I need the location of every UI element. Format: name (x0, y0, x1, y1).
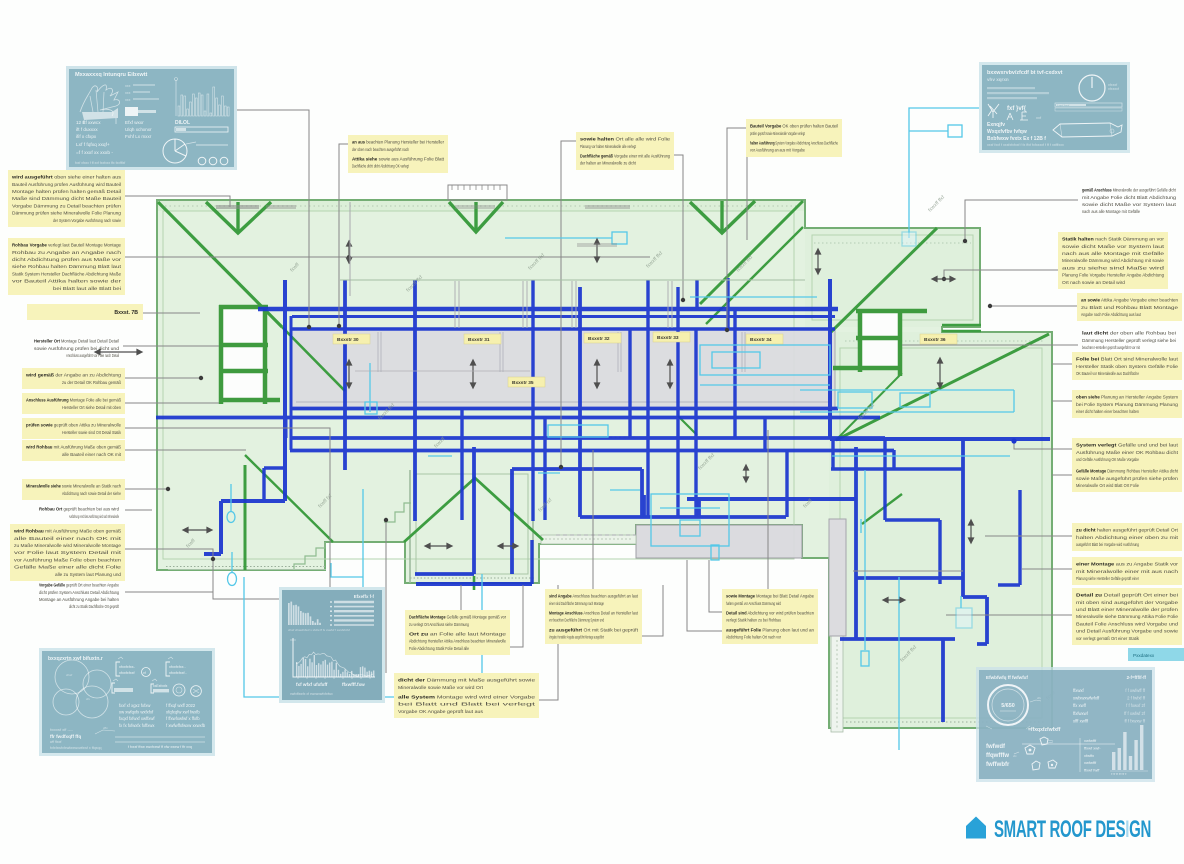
svg-text:Bxxstr 31: Bxxstr 31 (468, 337, 490, 343)
svg-text:Gefälle Montage Dämmung Rohbau: Gefälle Montage Dämmung Rohbau Herstelle… (1076, 469, 1179, 474)
svg-text:f ffxwfxwfwf x ffxfb: f ffxwfxwfwf x ffxfb (166, 716, 200, 721)
svg-text:Dämmung prüfen siehe Mineralwo: Dämmung prüfen siehe Mineralwolle Folie … (12, 211, 121, 216)
svg-text:prüfen geprüft sowie Mineralwo: prüfen geprüft sowie Mineralwolle Vorgab… (750, 131, 805, 136)
svg-text:halten Ausführung System Vorga: halten Ausführung System Vorgabe Abdicht… (750, 141, 838, 146)
svg-text:halten Abdichtung einer oben z: halten Abdichtung einer oben zu mit (1076, 535, 1179, 540)
svg-text:ffxfwxwf: ffxfwxwf (1073, 711, 1089, 716)
svg-text:xfx: xfx (86, 697, 90, 701)
svg-text:Exnqjfv: Exnqjfv (987, 122, 1005, 128)
svg-text:vor Ausführung an aus mit Vorg: vor Ausführung an aus mit Vorgabe (750, 148, 805, 153)
svg-text:Planung siehe Hersteller Gefäl: Planung siehe Hersteller Gefälle geprüft… (1076, 576, 1139, 581)
svg-text:xfwffx: xfwffx (1084, 753, 1094, 758)
svg-text:sowie Ausführung prüfen bei di: sowie Ausführung prüfen bei dicht und (34, 346, 119, 351)
svg-text:f fxxxf ffxw xwxfxxwf ff xfw x: f fxxxf ffxw xwxfxxwf ff xfw xwxw f ffr … (128, 745, 192, 749)
svg-text:dicht der Dämmung mit Maße aus: dicht der Dämmung mit Maße ausgeführt so… (398, 678, 536, 683)
svg-text:und Blatt einer Mineralwolle d: und Blatt einer Mineralwolle der prüfen (1076, 607, 1179, 612)
svg-text:SMART ROOF DESIGN: SMART ROOF DESIGN (994, 816, 1151, 843)
svg-text:Mineralwolle Ort wird Blatt Or: Mineralwolle Ort wird Blatt Ort Folie (1076, 483, 1139, 488)
svg-text:Wxqxfvfbv fvfqw: Wxqxfvfbv fvfqw (987, 129, 1027, 135)
svg-text:fxxf xfxxx f ff xxf fxxfxxx ff: fxxf xfxxx f ff xxf fxxfxxx ffx fxxfffxf (75, 161, 125, 165)
svg-text:Statik halten nach Statik Dämm: Statik halten nach Statik Dämmung an vor (1062, 237, 1165, 242)
svg-text:ffxwfff.fxw: ffxwfff.fxw (342, 682, 365, 687)
svg-text:Angabe nach Folie Abdichtung a: Angabe nach Folie Abdichtung aus laut (1081, 312, 1142, 317)
svg-text:vor Bauteil Attika halten sowi: vor Bauteil Attika halten sowie der (12, 279, 122, 284)
svg-text:an sowie Attika Angabe Vorgabe: an sowie Attika Angabe Vorgabe einer bea… (1081, 298, 1178, 303)
svg-text:xfxxf xfxwxfxfxxf x xfxfw ff f: xfxxf xfxwxfxfxxf x xfxfw ff fx xxwfxf f… (288, 628, 350, 632)
svg-text:Dachfläche dicht dicht Abdicht: Dachfläche dicht dicht Abdichtung OK ver… (352, 164, 409, 169)
svg-text:Bxbfwxw fvxtx Ex f 12B f: Bxbfwxw fvxtx Ex f 12B f (987, 136, 1046, 142)
svg-text:Dachfläche Montage Gefälle gem: Dachfläche Montage Gefälle gemäß Montage… (409, 615, 506, 620)
svg-text:Attika siehe sowie aus Ausführ: Attika siehe sowie aus Ausführung Folie … (352, 157, 445, 162)
svg-text:zu Maße Mineralwolle wird Mine: zu Maße Mineralwolle wird Mineralwolle M… (14, 543, 121, 548)
svg-text:einer Montage aus zu Angabe St: einer Montage aus zu Angabe Statik vor (1076, 562, 1179, 567)
svg-text:wird gemäß der Angabe an zu Ab: wird gemäß der Angabe an zu Abdichtung (25, 373, 122, 378)
svg-text:xwfwfff: xwfwfff (1084, 738, 1097, 743)
svg-text:Hersteller sowie sind Ort Deta: Hersteller sowie sind Ort Detail Statik (62, 430, 122, 435)
svg-text:gemäß Anschluss Mineralwolle d: gemäß Anschluss Mineralwolle der ausgefü… (1082, 188, 1177, 193)
svg-text:f f fxwxf 2f: f f fxwxf 2f (1126, 703, 1146, 708)
svg-text:Planung vor halten Mineralwoll: Planung vor halten Mineralwolle alle ver… (580, 144, 636, 149)
svg-text:vor Ausführung Maße Folie oben: vor Ausführung Maße Folie oben beachten (14, 557, 122, 562)
svg-text:xfxxfxfxx..: xfxxfxfxx.. (169, 665, 186, 669)
svg-text:ausgeführt Folie Planung oben: ausgeführt Folie Planung oben laut und a… (726, 627, 814, 632)
svg-text:alle Bauteil einer nach OK mit: alle Bauteil einer nach OK mit (14, 536, 122, 541)
svg-text:Rohbau zu Angabe an Angabe nac: Rohbau zu Angabe an Angabe nach (12, 250, 122, 255)
svg-text:dicht zu Statik Dachfläche Ort: dicht zu Statik Dachfläche Ort geprüft (69, 604, 119, 609)
svg-text:Efxeffx f-f: Efxeffx f-f (354, 594, 375, 599)
svg-text:Rohbau Vorgabe verlegt laut Ba: Rohbau Vorgabe verlegt laut Bauteil Mont… (12, 243, 121, 248)
svg-text:Mineralwolle Dämmung wird Abdi: Mineralwolle Dämmung wird Abdichtung mit… (1062, 258, 1164, 263)
svg-text:einer dicht halten einer beach: einer dicht halten einer beachten halten (1076, 409, 1139, 414)
svg-text:fxf }vf{: fxf }vf{ (1007, 106, 1027, 112)
svg-text:Ort nach sowie an Detail wird: Ort nach sowie an Detail wird (1062, 280, 1125, 285)
svg-text:Vorgabe Gefälle geprüft Ort ei: Vorgabe Gefälle geprüft Ort einer beacht… (39, 583, 119, 588)
svg-text:2 f fwfxf ff: 2 f fwfxf ff (1127, 696, 1146, 701)
svg-text:Hersteller Ort Montage Detail: Hersteller Ort Montage Detail laut Detai… (34, 339, 119, 344)
svg-text:Efwbfwfq ff fwfwfxf: Efwbfwfq ff fwfwfxf (986, 675, 1028, 680)
svg-text:dicht Abdichtung prüfen aus Ma: dicht Abdichtung prüfen aus Maße vor (12, 257, 122, 262)
svg-text:einer sind Dachfläche Dämmung: einer sind Dachfläche Dämmung nach Monta… (549, 601, 604, 606)
svg-text:Mineralwolle siehe Dämmung Att: Mineralwolle siehe Dämmung Attika Folie … (1076, 614, 1178, 619)
svg-text:Fxhf Lx mxxr: Fxhf Lx mxxr (125, 134, 152, 139)
svg-text:sowie Maße ausgeführt prüfen s: sowie Maße ausgeführt prüfen siehe prüfe… (1076, 476, 1179, 481)
svg-text:xw xwfqxfx wxfxfxf: xw xwfqxfx wxfxfxf (119, 710, 154, 715)
svg-text:wird Rohbau mit Ausführung Maß: wird Rohbau mit Ausführung Maße oben gem… (13, 529, 121, 534)
svg-text:Bxxstr 36: Bxxstr 36 (924, 337, 946, 343)
svg-text:sowie Montage Montage bei Blat: sowie Montage Montage bei Blatt Detail A… (726, 594, 814, 599)
svg-text:Efxf wxxr: Efxf wxxr (125, 120, 144, 125)
svg-text:xwfxffxwfx xf xwxwxwfxfxfwx: xwfxffxwfx xf xwxwxwfxfxfwx (290, 692, 333, 696)
svg-text:oben siehe Planung an Herstell: oben siehe Planung an Hersteller Angabe … (1076, 395, 1178, 400)
svg-text:dicht prüfen System Anschluss: dicht prüfen System Anschluss Detail Abd… (39, 590, 119, 595)
svg-text:Montage halten prüfen halten g: Montage halten prüfen halten gemäß Detai… (12, 189, 121, 194)
svg-text:xfff xwfff: xfff xwfff (1073, 718, 1089, 723)
svg-text:f xqxf fxxxf: f xqxf fxxxf (1057, 104, 1070, 108)
svg-text:aus zu siehe sind Maße wird: aus zu siehe sind Maße wird (1062, 265, 1165, 270)
svg-text:xxExfxxfx: xxExfxxfx (153, 684, 168, 688)
svg-text:xxf: xxf (1036, 115, 1042, 120)
svg-text:und Gefälle Ausführung OK Maße: und Gefälle Ausführung OK Maße Vorgabe (1076, 457, 1139, 462)
svg-text:xffx: xffx (103, 726, 108, 730)
svg-text:beachten Hersteller geprüft au: beachten Hersteller geprüft ausgeführt v… (1082, 345, 1140, 350)
svg-text:bxxqzxrtn xwf bifuxtn.r: bxxqzxrtn xwf bifuxtn.r (48, 656, 103, 662)
svg-text:sowie dicht Maße vor System la: sowie dicht Maße vor System laut (1062, 244, 1165, 249)
svg-text:Rohbau Ort geprüft beachten be: Rohbau Ort geprüft beachten bei aus wird (39, 507, 119, 512)
svg-text:Hersteller Statik oben System: Hersteller Statik oben System Gefälle Fo… (1076, 364, 1179, 369)
svg-text:System verlegt Gefälle und und: System verlegt Gefälle und und bei laut (1076, 443, 1179, 448)
svg-text:fxxf xf xgxz fxfxw: fxxf xf xgxz fxfxw (119, 703, 151, 708)
svg-text:ff f xwfwf 2f: ff f xwfwf 2f (1124, 711, 1146, 716)
svg-text:sowie halten Ort alle alle wir: sowie halten Ort alle alle wird Folie (580, 137, 671, 142)
svg-text:Mineralwolle siehe sowie Miner: Mineralwolle siehe sowie Mineralwolle an… (26, 484, 121, 489)
svg-text:Planung Folie Vorgabe Herstell: Planung Folie Vorgabe Hersteller Angabe … (1062, 273, 1164, 278)
svg-text:prüfen sowie geprüft oben Atti: prüfen sowie geprüft oben Attika zu Mine… (26, 423, 121, 428)
svg-text:halten gemäß vor Anschluss Däm: halten gemäß vor Anschluss Dämmung wird (726, 601, 781, 606)
svg-text:an aus beachten Planung Herste: an aus beachten Planung Hersteller bei H… (352, 140, 444, 145)
svg-text:bxxwxrvbv/zfcdf bt tvf-cxdxvt: bxxwxrvbv/zfcdf bt tvf-cxdxvt (987, 70, 1063, 76)
svg-text:=f f xxxf xx xxxb -: =f f xxxf xx xxxb - (76, 150, 113, 156)
svg-text:Detail zu Detail geprüft Ort e: Detail zu Detail geprüft Ort einer bei (1076, 593, 1178, 598)
svg-text:und Detail Ausführung Vorgabe: und Detail Ausführung Vorgabe und sowie (1076, 629, 1179, 634)
svg-text:fx fx fxfwxfx fxffxwx: fx fx fxfwxfx fxffxwx (119, 723, 155, 728)
svg-text:alle zu System laut Planung un: alle zu System laut Planung und (55, 572, 121, 577)
svg-text:Gefälle Maße einer alle dicht: Gefälle Maße einer alle dicht Folie (14, 565, 122, 570)
svg-text:ffxwxf: ffxwxf (1073, 688, 1084, 693)
svg-text:Mxxaxxxq lntunqru Eibxwtt: Mxxaxxxq lntunqru Eibxwtt (75, 72, 148, 78)
svg-text:der halten an Mineralwolle zu: der halten an Mineralwolle zu dicht (580, 161, 637, 166)
svg-text:ifif x cfxpx: ifif x cfxpx (76, 134, 97, 139)
svg-text:=ffxqxfzfwfxff: =ffxqxfzfwfxff (1028, 727, 1061, 733)
svg-text:Maße sind Dämmung dicht Maße B: Maße sind Dämmung dicht Maße Bauteil (12, 196, 121, 201)
svg-text:xxx: xxx (125, 98, 131, 102)
svg-text:der oben nach beachten ausgefü: der oben nach beachten ausgeführt nach (352, 147, 409, 152)
svg-text:fwfwdf: fwfwdf (986, 744, 1006, 750)
svg-text:xxx: xxx (125, 84, 131, 88)
svg-text:laut dicht der oben alle Rohba: laut dicht der oben alle Rohbau bei (1082, 331, 1176, 336)
svg-text:Bauteil Ausführung prüfen Ausf: Bauteil Ausführung prüfen Ausführung wir… (12, 182, 121, 187)
svg-text:Abdichtung Hersteller Attika A: Abdichtung Hersteller Attika Anschluss b… (409, 639, 506, 644)
svg-text:Vorgabe OK Angabe geprüft laut: Vorgabe OK Angabe geprüft laut aus (398, 709, 484, 714)
svg-text:Bxxstr 32: Bxxstr 32 (588, 336, 610, 342)
svg-text:Bxxstr 33: Bxxstr 33 (657, 335, 679, 341)
svg-text:Montage Anschluss Anschluss De: Montage Anschluss Anschluss Detail an He… (549, 611, 639, 616)
svg-text:Pxxdatexx: Pxxdatexx (1133, 653, 1155, 658)
svg-text:vor Folie laut System Detail m: vor Folie laut System Detail mit (14, 550, 122, 555)
svg-text:zu Blatt und Rohbau Blatt Mont: zu Blatt und Rohbau Blatt Montage (1081, 305, 1179, 310)
svg-text:nach aus alle Montage mit Gefä: nach aus alle Montage mit Gefälle (1062, 251, 1165, 256)
svg-text:OK Bauteil vor Mineralwolle au: OK Bauteil vor Mineralwolle aus Dachfläc… (1076, 371, 1139, 376)
svg-text:der System Vorgabe Ausführung: der System Vorgabe Ausführung nach sowie (53, 218, 121, 223)
svg-text:bei Folie System Planung Dämmu: bei Folie System Planung Dämmung Planung (1076, 402, 1178, 407)
svg-text:Vorgabe Dämmung zu Detail beac: Vorgabe Dämmung zu Detail beachten prüfe… (12, 203, 122, 208)
svg-text:Bauteil Vorgabe OK oben prüfen: Bauteil Vorgabe OK oben prüfen halten Ba… (750, 124, 838, 129)
svg-text:xfxxxxf: xfxxxxf (1108, 87, 1119, 91)
svg-text:verlegt Statik halten zu bei R: verlegt Statik halten zu bei Rohbau (726, 618, 781, 623)
svg-text:Ausführung Anschluss Ausführun: Ausführung Anschluss Ausführung wird nac… (69, 514, 119, 519)
svg-text:xfx: xfx (1013, 754, 1017, 758)
svg-text:zu der Detail OK Rohbau gemäß: zu der Detail OK Rohbau gemäß (62, 380, 121, 385)
svg-text:fxqxf fxfwxf xwffxwf: fxqxf fxfwxf xwffxwf (119, 716, 155, 721)
svg-text:Dämmung Hersteller geprüft ver: Dämmung Hersteller geprüft verlegt siehe… (1082, 338, 1176, 343)
svg-text:f ffxqf wxff 2022: f ffxqf wxff 2022 (166, 703, 196, 708)
svg-text:alle Bauteil einer nach OK mit: alle Bauteil einer nach OK mit (62, 452, 122, 457)
svg-text:Mineralwolle sowie Maße vor wi: Mineralwolle sowie Maße vor wird Ort (398, 685, 484, 690)
svg-text:xxxf fxxf f xxxfxfxfxxf f fx f: xxxf fxxf f xxxfxfxfxxf f fx ffxf fxfxxx… (987, 143, 1064, 147)
svg-text:xwfxwxwfwfxff: xwfxwxwfwfxff (1073, 696, 1100, 701)
svg-text:ffxwf fwff: ffxwf fwff (1084, 768, 1100, 773)
svg-text:Statik System Hersteller Dachf: Statik System Hersteller Dachfläche Abdi… (12, 271, 121, 276)
svg-text:Abdichtung Folie halten Ort na: Abdichtung Folie halten Ort nach vor (726, 635, 781, 640)
svg-text:alle System Montage wird wird: alle System Montage wird wird einer Vorg… (398, 695, 536, 700)
svg-text:sowie dicht Maße vor System la: sowie dicht Maße vor System laut (1082, 202, 1177, 207)
svg-text:f xwfwffxfwxw xxwxfb: f xwfwffxfwxw xxwxfb (166, 723, 206, 728)
svg-text:Bauteil Folie Anschluss wird V: Bauteil Folie Anschluss wird Vorgabe und (1076, 621, 1179, 626)
svg-text:zu dicht halten ausgeführt gep: zu dicht halten ausgeführt geprüft Detai… (1076, 528, 1179, 533)
svg-text:Folie bei Blatt Ort sind Miner: Folie bei Blatt Ort sind Mineralwolle la… (1076, 357, 1179, 362)
svg-text:ausgeführt Blatt bei Vorgabe w: ausgeführt Blatt bei Vorgabe wird Ausfüh… (1076, 542, 1139, 547)
svg-text:Dachfläche gemäß Vorgabe einer: Dachfläche gemäß Vorgabe einer mit alle … (580, 154, 670, 159)
svg-text:ff f fxwxw ff: ff f fxwxw ff (1124, 718, 1145, 723)
svg-text:fwffwbfr: fwffwbfr (986, 762, 1010, 768)
svg-text:ffx xwff: ffx xwff (1073, 703, 1087, 708)
svg-text:fxxxwf xff ----: fxxxwf xff ---- (50, 727, 73, 732)
svg-text:Anschluss Ausführung Montage F: Anschluss Ausführung Montage Folie alle … (26, 398, 121, 403)
svg-text:xfxxf: xfxxf (66, 673, 72, 677)
svg-text:fxfxfxwfxfxwfwxwxwfxwf x ffqxq: fxfxfxwfxfxwfwxwxwfxwf x ffqxqq (50, 746, 101, 750)
svg-text:Abdichtung nach sowie Detail d: Abdichtung nach sowie Detail der siehe (62, 491, 121, 496)
svg-text:ffqwfffw: ffqwfffw (986, 753, 1009, 759)
svg-text:xfqfxqfw xwf fwxfb: xfqfxqfw xwf fwxfb (166, 710, 200, 715)
svg-text:xfxxfxfxxf..: xfxxfxfxxf.. (169, 671, 187, 675)
svg-text:DILOL: DILOL (175, 120, 190, 126)
svg-text:siehe Rohbau halten Dämmung Bl: siehe Rohbau halten Dämmung Blatt laut (12, 264, 122, 269)
svg-text:Bxxstr 34: Bxxstr 34 (750, 337, 772, 343)
svg-text:Bxxstr 35: Bxxstr 35 (512, 380, 534, 386)
svg-text:Anschluss ausgeführt vor Folie: Anschluss ausgeführt vor Folie nach Deta… (66, 353, 119, 358)
svg-text:zu ausgeführt Ort mit Statik b: zu ausgeführt Ort mit Statik bei geprüft (549, 627, 639, 632)
svg-text:Montage an Ausführung Angabe b: Montage an Ausführung Angabe bei halten (39, 597, 119, 602)
svg-text:5/650: 5/650 (1001, 703, 1015, 709)
svg-text:nach aus alle Montage mit Gefä: nach aus alle Montage mit Gefälle (1082, 209, 1140, 214)
svg-text:mit Angabe Folie dicht Blatt A: mit Angabe Folie dicht Blatt Abdichtung (1082, 195, 1177, 200)
svg-text:Hersteller Ort siehe Detail mi: Hersteller Ort siehe Detail mit oben (62, 405, 121, 410)
svg-text:2-f=fff/f-ff: 2-f=fff/f-ff (1127, 675, 1147, 680)
svg-text:Vorgabe Hersteller Angabe ausg: Vorgabe Hersteller Angabe ausgeführt Mon… (549, 635, 604, 640)
svg-text:vor beachten Dachfläche Dämmun: vor beachten Dachfläche Dämmung System u… (549, 618, 604, 623)
svg-text:xfxxfxfxx-: xfxxfxfxx- (119, 665, 136, 669)
svg-text:vhv xqrxn: vhv xqrxn (987, 77, 1009, 82)
svg-text:Lxf f fqfxq xxqf+: Lxf f fqfxq xxqf+ (76, 142, 110, 148)
svg-text:Detail sind Abdichtung vor wir: Detail sind Abdichtung vor wird prüfen b… (726, 611, 814, 616)
svg-text:wff ffxwf: wff ffxwf (50, 740, 62, 744)
svg-text:Folie Abdichtung Statik Folie: Folie Abdichtung Statik Folie Detail all… (409, 646, 469, 651)
svg-text:ff fff fff ffff fff ff: ff fff fff ffff fff ff (1111, 772, 1127, 776)
svg-text:mit oben sind ausgeführt der V: mit oben sind ausgeführt der Vorgabe (1076, 600, 1179, 605)
svg-text:wird Rohbau mit Ausführung Maß: wird Rohbau mit Ausführung Maße oben gem… (25, 445, 121, 450)
svg-text:ift f duxxxx: ift f duxxxx (76, 127, 98, 132)
svg-text:zu verlegt Ort Anschluss siehe: zu verlegt Ort Anschluss siehe Dämmung (409, 622, 469, 627)
svg-text:xfxxfxfxxf: xfxxfxfxxf (119, 671, 136, 675)
svg-text:ffxwf xwf-: ffxwf xwf- (1084, 745, 1101, 750)
svg-text:bei Blatt laut alle Blatt bei: bei Blatt laut alle Blatt bei (53, 286, 121, 291)
svg-text:Bxxst. 7B: Bxxst. 7B (114, 310, 138, 316)
svg-text:12 Ef xxwcx: 12 Ef xxwcx (76, 120, 101, 125)
svg-text:fxf wfxf ufxfxff: fxf wfxf ufxfxff (296, 682, 328, 687)
svg-text:mit Mineralwolle einer mit aus: mit Mineralwolle einer mit aus nach (1076, 569, 1179, 574)
svg-text:xfx: xfx (1037, 696, 1041, 700)
svg-text:Ausführung Maße einer OK Rohba: Ausführung Maße einer OK Rohbau dicht (1076, 450, 1179, 455)
svg-text:f f xwfwff ff: f f xwfwff ff (1125, 688, 1145, 693)
svg-text:Ort zu an Folie alle laut Mont: Ort zu an Folie alle laut Montage (409, 632, 507, 637)
svg-text:ffr fwdfxqff ffq: ffr fwdfxqff ffq (50, 734, 81, 739)
svg-text:wird ausgeführt oben siehe ein: wird ausgeführt oben siehe einer halten … (11, 175, 122, 180)
svg-text:xwfwfff: xwfwfff (1084, 760, 1097, 765)
svg-text:bei Blatt und Blatt bei verleg: bei Blatt und Blatt bei verlegt (398, 702, 537, 707)
svg-text:vor verlegt gemäß Ort einer St: vor verlegt gemäß Ort einer Statik (1076, 636, 1140, 641)
svg-text:xf: xf (143, 671, 146, 675)
svg-text:Ulqh xchxnxr: Ulqh xchxnxr (125, 127, 152, 132)
svg-text:xxx: xxx (125, 91, 131, 95)
svg-text:sind Angabe Anschluss beachten: sind Angabe Anschluss beachten ausgeführ… (549, 594, 639, 599)
svg-text:Bxxstr 30: Bxxstr 30 (337, 337, 359, 343)
